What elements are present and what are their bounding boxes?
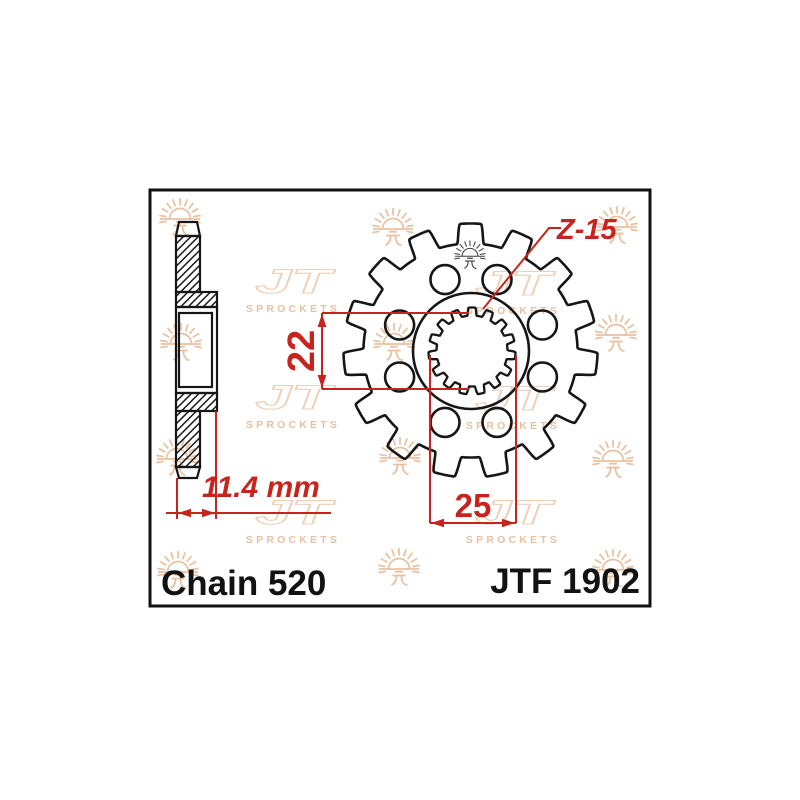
chain-size-label: Chain 520 [161, 566, 326, 601]
svg-text:SPROCKETS: SPROCKETS [246, 419, 340, 431]
jt-sun-icon [160, 323, 201, 360]
product-technical-drawing: JTSPROCKETSJTSPROCKETSJTSPROCKETSJTSPROC… [0, 0, 800, 800]
lightening-hole [431, 408, 460, 437]
jt-sun-icon [159, 198, 200, 235]
jt-sun-icon [595, 314, 636, 351]
jt-sprockets-logo-icon: JTSPROCKETS [246, 378, 340, 431]
jt-sun-icon [372, 208, 413, 245]
svg-text:JT: JT [255, 378, 336, 416]
jt-sun-icon [378, 548, 419, 585]
svg-text:JT: JT [255, 262, 336, 300]
sprocket-drawing-canvas: JTSPROCKETSJTSPROCKETSJTSPROCKETSJTSPROC… [0, 0, 800, 800]
teeth-count-label: Z-15 [557, 216, 617, 245]
jt-sprockets-logo-icon: JTSPROCKETS [246, 262, 340, 315]
dimension-spline-width: 25 [443, 489, 503, 522]
lightening-hole [431, 265, 460, 294]
dimension-hub-width: 11.4 mm [202, 473, 320, 503]
part-number-label: JTF 1902 [470, 564, 640, 599]
jt-sun-icon [592, 440, 633, 477]
jt-sun-icon [373, 323, 414, 360]
svg-text:SPROCKETS: SPROCKETS [246, 534, 340, 546]
dimension-spline-height: 22 [283, 321, 321, 381]
jt-sprockets-logo-icon: JTSPROCKETS [466, 379, 560, 432]
watermark-layer: JTSPROCKETSJTSPROCKETSJTSPROCKETSJTSPROC… [156, 198, 637, 588]
lightening-hole [385, 363, 414, 392]
svg-text:SPROCKETS: SPROCKETS [466, 534, 560, 546]
